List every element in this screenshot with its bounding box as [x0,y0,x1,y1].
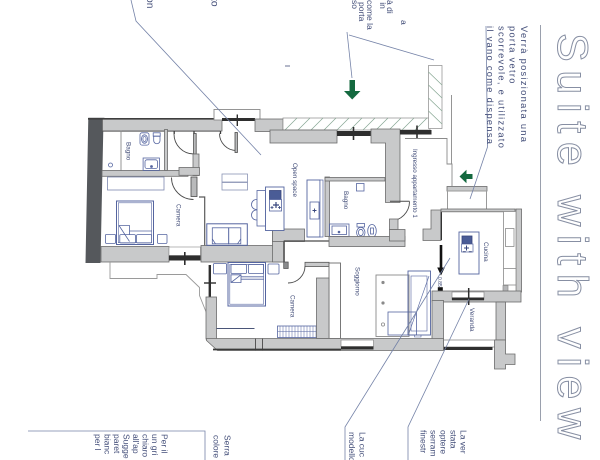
svg-text:Serra: Serra [222,435,232,456]
svg-text:porta vetro: porta vetro [508,26,518,85]
svg-text:finestr: finestr [418,430,428,453]
svg-text:on: on [144,0,155,9]
svg-text:to: to [209,0,220,7]
svg-text:i in: i in [378,0,388,9]
svg-text:Open space: Open space [291,163,298,197]
svg-text:chiaro: chiaro [140,434,150,457]
svg-text:modello: modello [347,432,357,460]
svg-text:Per il: Per il [159,434,169,453]
svg-text:Veranda: Veranda [468,308,475,332]
svg-text:Cucina: Cucina [482,242,489,262]
svg-text:a: a [399,20,409,25]
svg-text:Suite with view: Suite with view [548,33,596,448]
svg-text:scorrevole, e utilizzato: scorrevole, e utilizzato [496,26,506,149]
svg-text:Verrà posizionata una: Verrà posizionata una [519,26,529,143]
svg-text:optere: optere [438,430,448,454]
svg-text:all'ap: all'ap [131,434,141,454]
svg-text:so: so [350,0,360,9]
svg-text:un gri: un gri [150,434,160,455]
svg-text:Camera: Camera [289,295,296,318]
svg-text:stata: stata [448,430,458,449]
svg-text:serram: serram [428,430,438,456]
svg-text:il vano come dispensa: il vano come dispensa [485,26,495,145]
svg-text:Bagno: Bagno [124,142,131,161]
svg-text:Ingresso appartamento 1: Ingresso appartamento 1 [411,149,418,218]
svg-text:colore: colore [211,435,221,458]
svg-text:Sugge: Sugge [121,434,131,459]
svg-text:per l: per l [93,434,103,451]
svg-text:La ver: La ver [458,430,468,454]
svg-text:La cuc: La cuc [357,432,367,458]
svg-text:paret: paret [112,434,122,454]
svg-text:Soggiorno: Soggiorno [354,267,361,296]
svg-text:Bagno: Bagno [342,191,349,210]
svg-text:Camera: Camera [175,204,182,227]
svg-text:bianc: bianc [102,434,112,455]
